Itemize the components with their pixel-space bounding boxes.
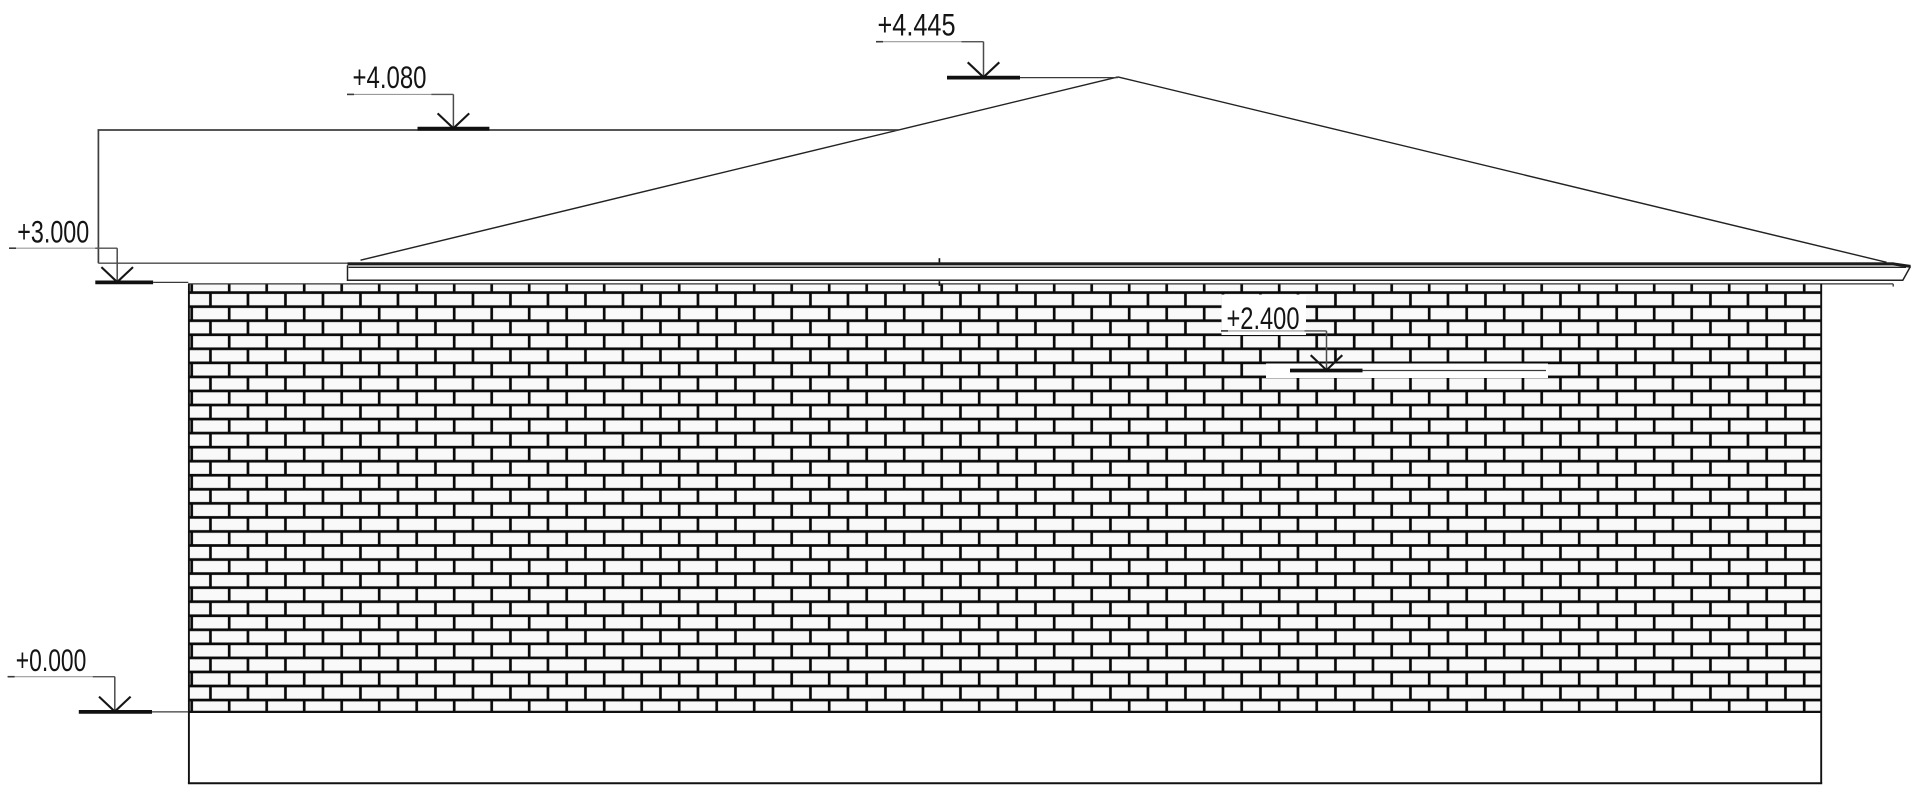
svg-text:+4.445: +4.445: [878, 8, 956, 43]
svg-text:+2.400: +2.400: [1227, 301, 1300, 336]
svg-text:+3.000: +3.000: [17, 214, 89, 249]
svg-text:+4.080: +4.080: [353, 60, 427, 95]
svg-text:+0.000: +0.000: [16, 642, 87, 677]
